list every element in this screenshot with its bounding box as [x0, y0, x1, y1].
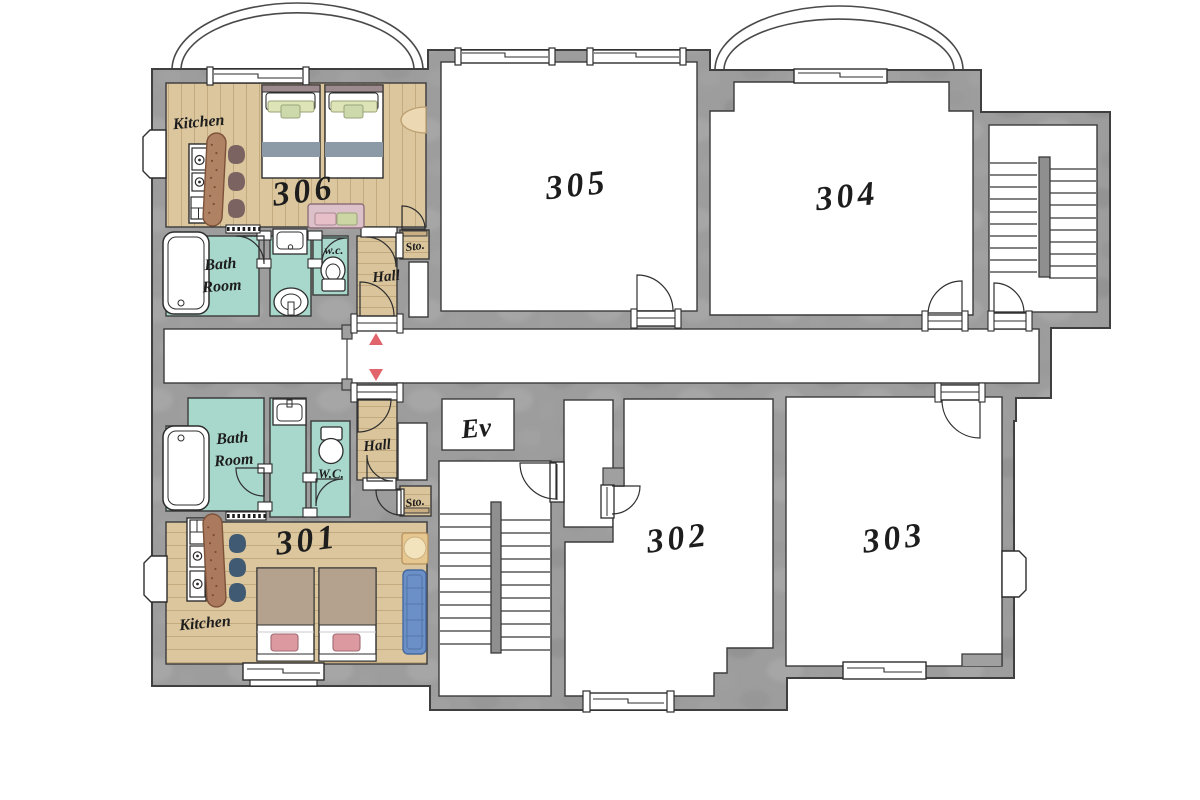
svg-text:306: 306 — [269, 169, 337, 214]
svg-text:301: 301 — [272, 518, 340, 563]
svg-text:305: 305 — [543, 164, 611, 207]
svg-text:302: 302 — [643, 516, 711, 561]
svg-text:Hall: Hall — [362, 437, 393, 455]
svg-text:Ev: Ev — [459, 412, 494, 445]
svg-text:Sto.: Sto. — [405, 238, 426, 255]
svg-text:304: 304 — [813, 175, 881, 218]
svg-text:Bath: Bath — [215, 429, 249, 448]
svg-text:Sto.: Sto. — [405, 494, 426, 511]
svg-text:303: 303 — [859, 516, 927, 561]
svg-text:Room: Room — [213, 451, 254, 471]
svg-text:Hall: Hall — [371, 268, 402, 286]
svg-text:w.c.: w.c. — [325, 243, 344, 257]
svg-text:Room: Room — [201, 277, 242, 297]
svg-text:Bath: Bath — [203, 255, 237, 274]
svg-text:W.C.: W.C. — [318, 466, 344, 481]
